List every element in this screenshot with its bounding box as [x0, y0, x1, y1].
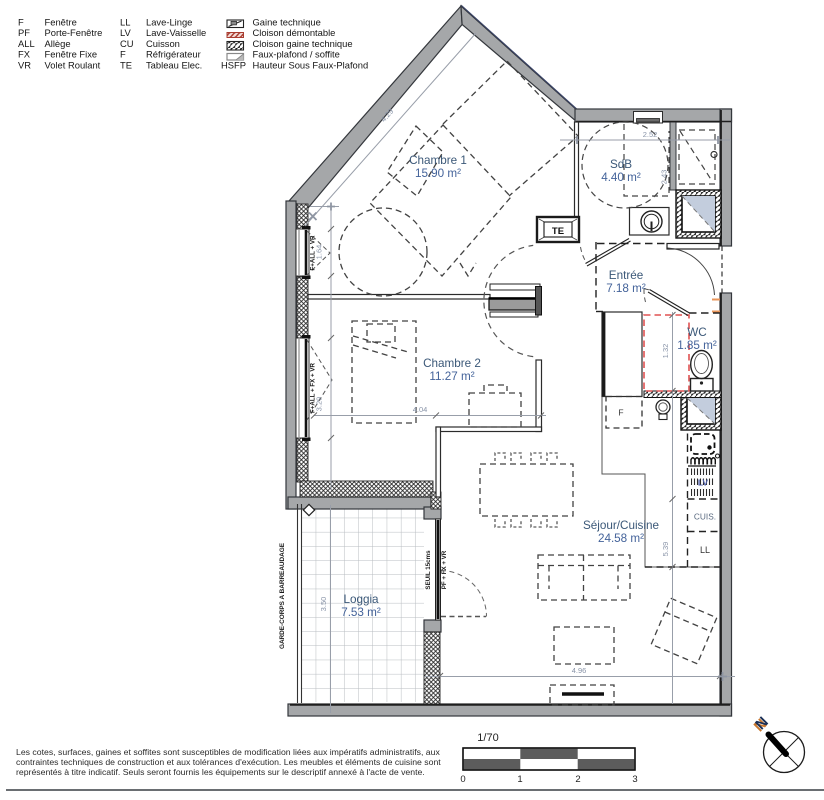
svg-text:Chambre 1: Chambre 1 — [409, 154, 467, 167]
svg-text:contraintes techniques de cons: contraintes techniques de construction e… — [16, 757, 441, 767]
svg-text:Cloison gaine technique: Cloison gaine technique — [253, 38, 353, 49]
svg-text:15.90 m²: 15.90 m² — [415, 167, 461, 180]
svg-text:2.43: 2.43 — [660, 170, 669, 185]
svg-text:TE: TE — [552, 226, 564, 237]
svg-text:F: F — [618, 408, 623, 418]
svg-text:1.85 m²: 1.85 m² — [677, 339, 717, 352]
svg-text:1: 1 — [517, 774, 522, 785]
svg-text:TE: TE — [120, 59, 132, 70]
svg-text:3.50: 3.50 — [319, 597, 328, 612]
svg-text:GARDE-CORPS A BARREAUDAGE: GARDE-CORPS A BARREAUDAGE — [279, 542, 286, 649]
svg-text:Chambre 2: Chambre 2 — [423, 357, 481, 370]
svg-text:Réfrigérateur: Réfrigérateur — [146, 49, 201, 60]
svg-text:F: F — [18, 17, 24, 28]
svg-text:SEUIL 15cms: SEUIL 15cms — [425, 550, 432, 590]
svg-text:CU: CU — [120, 38, 134, 49]
svg-text:Lave-Linge: Lave-Linge — [146, 17, 192, 28]
svg-text:Séjour/Cuisine: Séjour/Cuisine — [583, 519, 659, 532]
svg-text:Fenêtre: Fenêtre — [45, 17, 77, 28]
svg-text:LV: LV — [698, 478, 709, 488]
svg-text:4.04: 4.04 — [413, 405, 428, 414]
svg-text:Tableau Elec.: Tableau Elec. — [146, 59, 202, 70]
svg-text:7.18 m²: 7.18 m² — [606, 282, 646, 295]
svg-text:Loggia: Loggia — [343, 593, 379, 606]
svg-text:ALL: ALL — [18, 38, 35, 49]
svg-text:4.96: 4.96 — [572, 666, 587, 675]
svg-text:Allège: Allège — [45, 38, 71, 49]
svg-text:représentés à titre indicatif.: représentés à titre indicatif. Seuls ser… — [16, 767, 425, 777]
svg-text:Gaine technique: Gaine technique — [253, 17, 321, 28]
svg-text:2: 2 — [575, 774, 580, 785]
svg-text:VR: VR — [18, 59, 31, 70]
svg-text:Faux-plafond / soffite: Faux-plafond / soffite — [253, 49, 340, 60]
svg-text:LV: LV — [120, 27, 132, 38]
svg-text:Hauteur Sous Faux-Plafond: Hauteur Sous Faux-Plafond — [253, 59, 369, 70]
svg-text:N: N — [752, 714, 772, 734]
svg-text:FX: FX — [18, 49, 31, 60]
svg-text:Fenêtre Fixe: Fenêtre Fixe — [45, 49, 98, 60]
svg-text:11.27 m²: 11.27 m² — [429, 370, 474, 383]
svg-text:F+ALL + VR: F+ALL + VR — [310, 235, 317, 270]
svg-text:Lave-Vaisselle: Lave-Vaisselle — [146, 27, 206, 38]
svg-text:Les cotes, surfaces, gaines et: Les cotes, surfaces, gaines et soffites … — [16, 747, 440, 757]
svg-text:F+ALL + FX + VR: F+ALL + FX + VR — [310, 363, 317, 413]
svg-text:Cloison démontable: Cloison démontable — [253, 27, 336, 38]
svg-text:0: 0 — [460, 774, 465, 785]
svg-text:LL: LL — [700, 545, 710, 555]
svg-text:4.40 m²: 4.40 m² — [601, 171, 641, 184]
svg-text:7.53 m²: 7.53 m² — [341, 606, 381, 619]
svg-text:2.52: 2.52 — [643, 130, 658, 139]
svg-text:Porte-Fenêtre: Porte-Fenêtre — [45, 27, 103, 38]
svg-text:Cuisson: Cuisson — [146, 38, 180, 49]
svg-text:Volet Roulant: Volet Roulant — [45, 59, 101, 70]
svg-text:1/70: 1/70 — [477, 732, 498, 744]
svg-text:PF + FX + VR: PF + FX + VR — [441, 550, 448, 589]
svg-text:1.32: 1.32 — [661, 344, 670, 359]
svg-text:F: F — [120, 49, 126, 60]
svg-text:PF: PF — [18, 27, 30, 38]
svg-text:Entrée: Entrée — [609, 269, 643, 282]
svg-text:5.39: 5.39 — [661, 542, 670, 557]
svg-text:WC: WC — [687, 326, 706, 339]
svg-text:SdB: SdB — [610, 158, 632, 171]
svg-text:3: 3 — [632, 774, 637, 785]
svg-text:HSFP: HSFP — [221, 59, 246, 70]
svg-text:24.58 m²: 24.58 m² — [598, 532, 644, 545]
svg-text:LL: LL — [120, 17, 130, 28]
svg-text:CUIS.: CUIS. — [694, 512, 716, 522]
